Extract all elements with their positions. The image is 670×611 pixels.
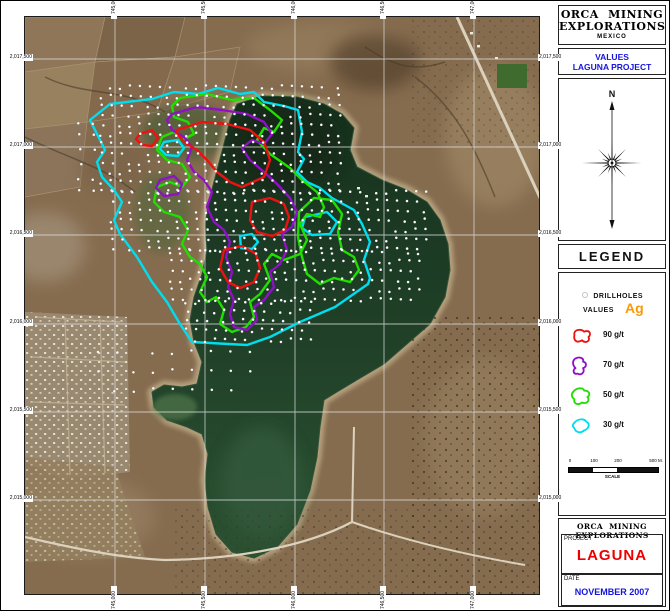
contour-swatch-icon [569,355,595,377]
legend-entry-label: 50 g/t [603,390,624,399]
legend-title-box: LEGEND [558,244,666,269]
svg-text:N: N [609,89,616,99]
northing-label-right: 2,016,000 [538,319,569,326]
drillholes-label: DRILLHOLES [593,293,643,300]
scale-bar: 0100200500 M.SCALE [559,455,667,491]
scale-end-label: 500 M. [643,458,663,463]
northing-label-left: 2,016,000 [2,319,33,326]
easting-label-bottom: 747,000 [470,586,476,611]
satellite-basemap [25,17,539,594]
map-title-box: VALUES LAGUNA PROJECT [558,48,666,75]
easting-label-bottom: 745,500 [201,586,207,611]
company-title-box: ORCA MINING EXPLORATIONS MEXICO [558,5,666,45]
compass-box: N [558,78,666,241]
legend-entry: 70 g/t [559,353,667,381]
legend-title: LEGEND [559,245,665,268]
scale-tick-label: 100 [588,458,600,463]
northing-label-left: 2,015,500 [2,407,33,414]
project-label: PROJECT [564,536,592,542]
scale-tick-label: 200 [612,458,624,463]
easting-label-top: 747,000 [470,0,476,19]
project-box: PROJECT LAGUNA [561,534,663,574]
legend-entry: 50 g/t [559,383,667,411]
date-label: DATE [564,576,580,582]
legend-entry-label: 30 g/t [603,420,624,429]
map-area [24,16,540,595]
legend-entry: 30 g/t [559,413,667,441]
project-name: LAGUNA [562,547,662,564]
easting-label-top: 746,000 [291,0,297,19]
legend-box: DRILLHOLES VALUES Ag 90 g/t70 g/t50 g/t3… [558,272,666,516]
values-label: VALUES [583,307,614,314]
northing-label-right: 2,015,500 [538,407,569,414]
drillhole-dot-icon [581,291,589,299]
legend-entry-label: 70 g/t [603,360,624,369]
northing-label-right: 2,016,500 [538,230,569,237]
map-sheet: 2,017,5002,017,5002,017,0002,017,0002,01… [0,0,670,611]
northing-label-left: 2,017,500 [2,54,33,61]
northing-label-left: 2,017,000 [2,142,33,149]
northing-label-right: 2,017,000 [538,142,569,149]
scale-bar-segment [617,468,658,472]
company-country: MEXICO [559,34,665,40]
easting-label-bottom: 746,000 [291,586,297,611]
drillholes-row: DRILLHOLES [559,285,665,303]
map-title-line1: VALUES [559,52,665,62]
northing-label-left: 2,016,500 [2,230,33,237]
northing-label-right: 2,015,000 [538,495,569,502]
scale-bar-segment [569,468,593,472]
scale-bar-track [568,467,659,473]
date-box: DATE NOVEMBER 2007 [561,574,663,606]
compass-rose-icon: N [567,85,657,235]
easting-label-bottom: 745,000 [111,586,117,611]
legend-entry-label: 90 g/t [603,330,624,339]
scale-tick-label: 0 [564,458,576,463]
easting-label-top: 745,000 [111,0,117,19]
legend-entry: 90 g/t [559,323,667,351]
easting-label-top: 746,500 [380,0,386,19]
scale-caption: SCALE [568,474,657,479]
town [25,312,145,562]
company-name-line2: EXPLORATIONS [559,21,665,33]
element-symbol-ag: Ag [625,300,644,316]
title-block: ORCA MINING EXPLORATIONS PROJECT LAGUNA … [558,518,666,607]
northing-label-left: 2,015,000 [2,495,33,502]
northing-label-right: 2,017,500 [538,54,569,61]
date-value: NOVEMBER 2007 [562,587,662,597]
easting-label-bottom: 746,500 [380,586,386,611]
contour-swatch-icon [569,415,595,437]
contour-swatch-icon [569,325,595,347]
easting-label-top: 745,500 [201,0,207,19]
map-title-line2: LAGUNA PROJECT [559,62,665,72]
contour-swatch-icon [569,385,595,407]
